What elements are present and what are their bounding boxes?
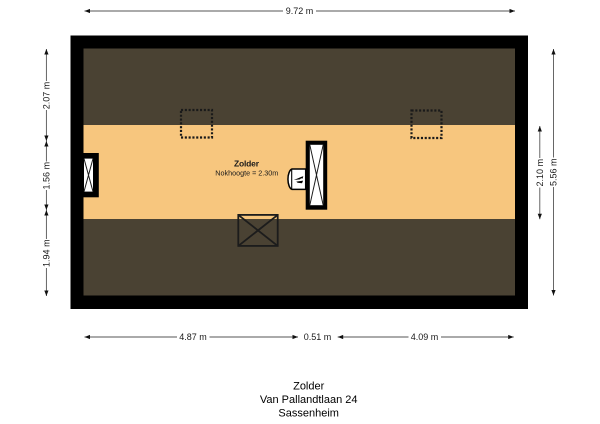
svg-text:Zolder: Zolder	[293, 380, 325, 392]
svg-text:Nokhoogte = 2.30m: Nokhoogte = 2.30m	[215, 169, 278, 178]
svg-text:2.07 m: 2.07 m	[42, 82, 52, 110]
svg-text:5.56 m: 5.56 m	[549, 159, 559, 187]
svg-text:9.72 m: 9.72 m	[286, 6, 314, 16]
svg-text:4.87 m: 4.87 m	[179, 332, 207, 342]
svg-text:1.94 m: 1.94 m	[42, 239, 52, 267]
svg-text:Van Pallandtlaan 24: Van Pallandtlaan 24	[260, 394, 358, 406]
svg-text:0.51 m: 0.51 m	[304, 332, 332, 342]
svg-text:1.56 m: 1.56 m	[42, 162, 52, 190]
svg-text:2.10 m: 2.10 m	[535, 159, 545, 187]
svg-text:Zolder: Zolder	[234, 159, 260, 169]
svg-text:4.09 m: 4.09 m	[411, 332, 439, 342]
svg-text:Sassenheim: Sassenheim	[278, 407, 339, 419]
